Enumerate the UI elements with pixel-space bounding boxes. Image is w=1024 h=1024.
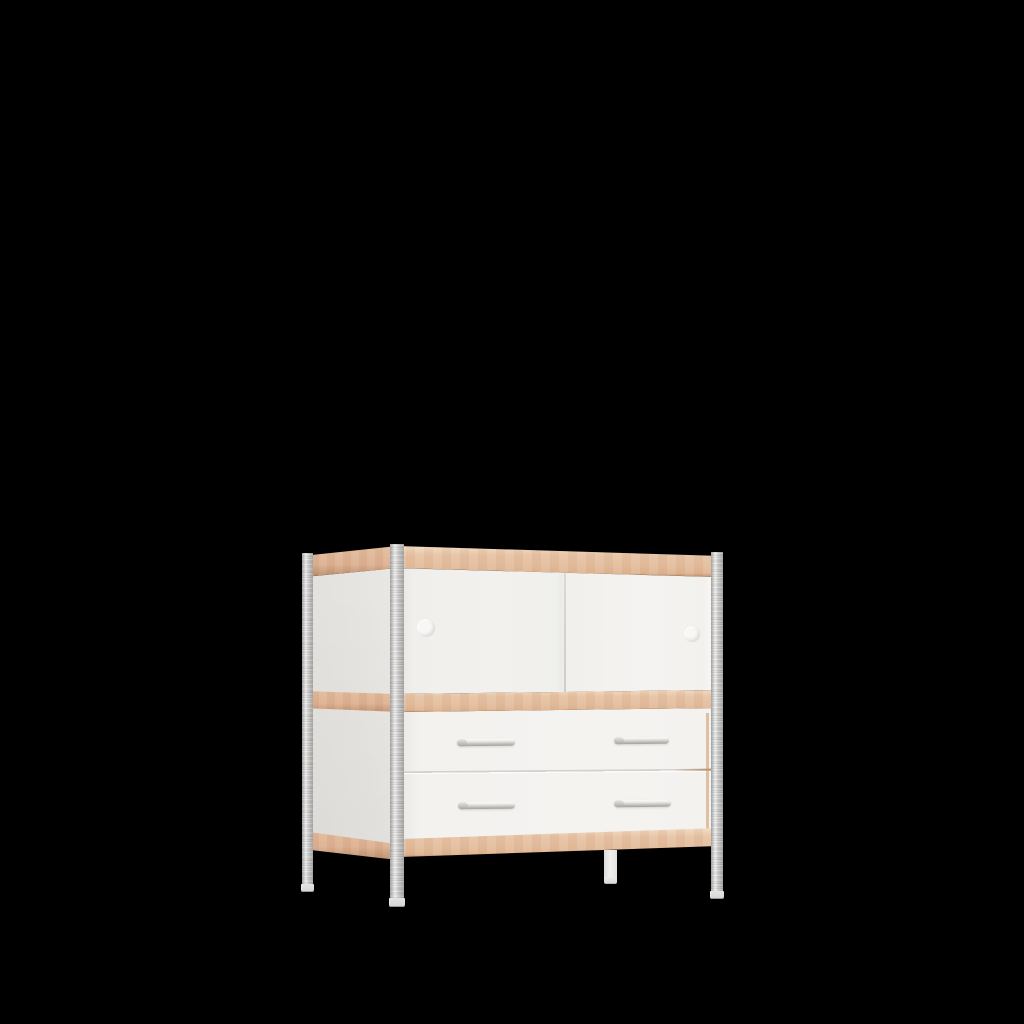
foot-front-left	[389, 898, 405, 907]
door-seam	[564, 573, 566, 692]
post-front-right	[711, 552, 723, 891]
leg-rear-right	[604, 850, 617, 877]
handle-mount	[614, 800, 624, 807]
handle-mount	[458, 802, 468, 809]
handle-mount	[614, 737, 624, 744]
post-front-left	[390, 544, 404, 898]
sliding-door-left	[397, 566, 566, 714]
drawer-handle-upper-left	[457, 739, 515, 747]
drawer-handle-lower-right	[614, 800, 671, 808]
handle-mount	[457, 739, 467, 746]
finger-hole-left	[417, 619, 435, 637]
drawer-handle-upper-right	[614, 737, 669, 745]
foot-rear-right	[604, 877, 617, 884]
finger-hole-right	[684, 626, 700, 642]
scene-background	[0, 0, 1024, 1024]
drawer-seam	[397, 769, 718, 775]
drawer-section	[397, 708, 718, 843]
drawer-handle-lower-left	[458, 802, 515, 810]
foot-front-right	[710, 891, 724, 899]
foot-rear-left	[301, 884, 314, 892]
drawer-right-edge	[706, 713, 709, 838]
post-rear-left	[302, 553, 313, 884]
cabinet-render	[0, 0, 1024, 1024]
